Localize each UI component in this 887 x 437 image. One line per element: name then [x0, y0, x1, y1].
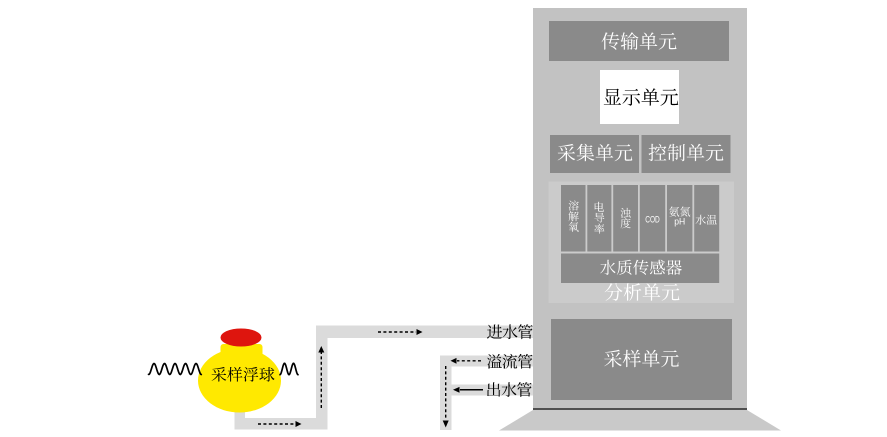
- svg-text:COD: COD: [645, 215, 660, 226]
- svg-text:pH: pH: [674, 217, 685, 228]
